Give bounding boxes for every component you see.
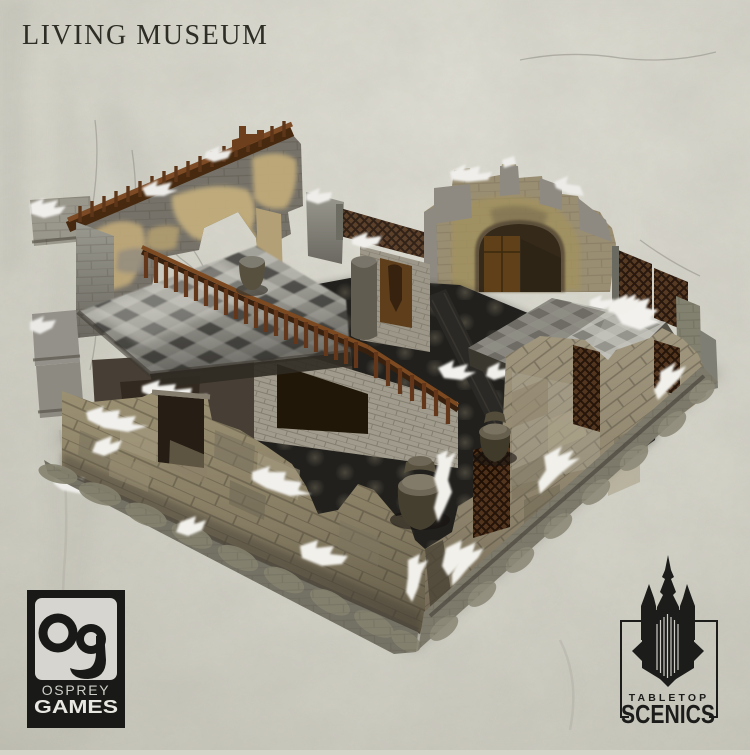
svg-text:OSPREY: OSPREY: [42, 682, 111, 698]
svg-text:SCENICS: SCENICS: [621, 699, 715, 729]
svg-text:GAMES: GAMES: [34, 697, 118, 717]
svg-text:LIVING MUSEUM: LIVING MUSEUM: [22, 20, 268, 51]
